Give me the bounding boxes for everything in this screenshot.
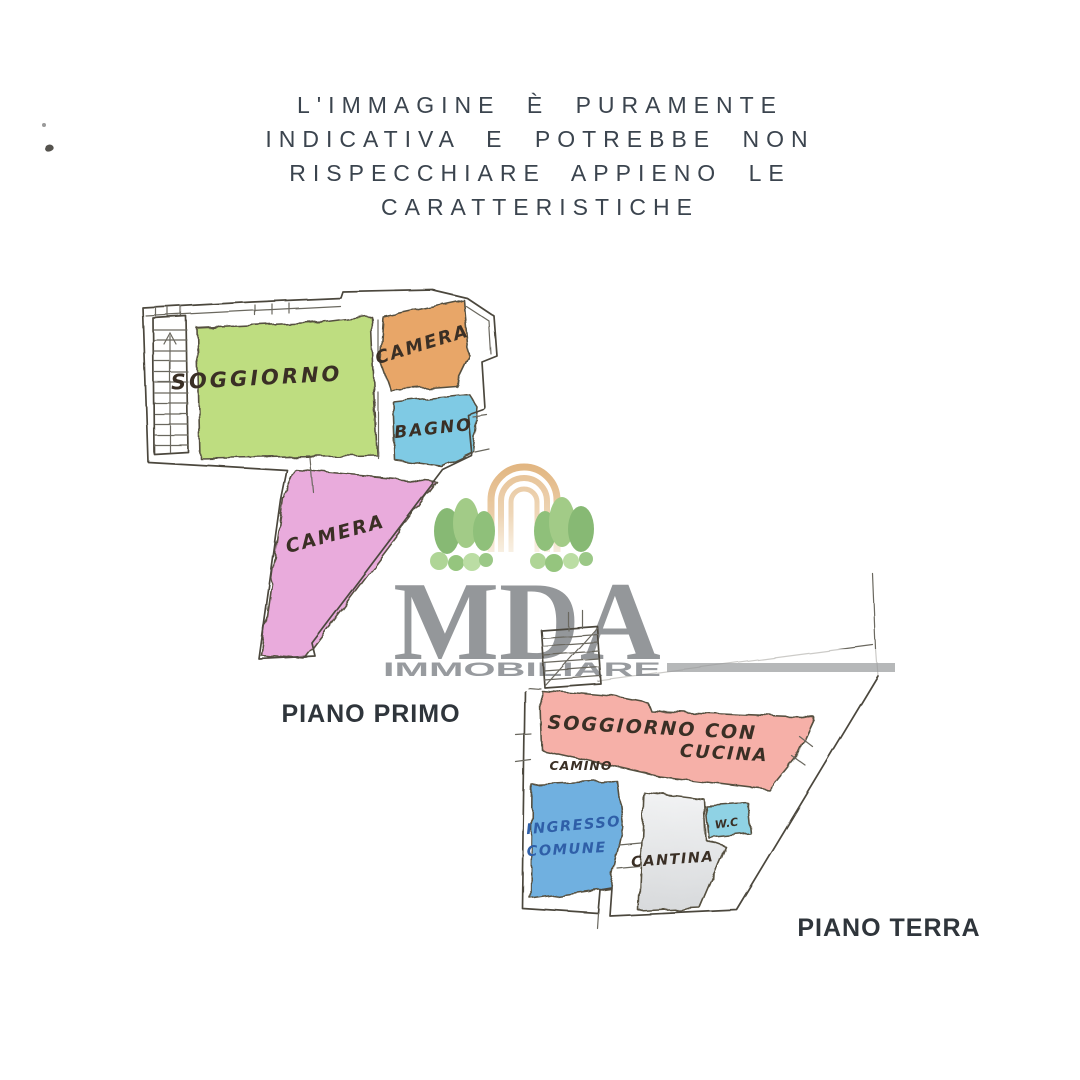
first-floor-title: PIANO PRIMO [281,700,460,728]
logo-rule [667,663,895,672]
room-ingresso-comune [531,781,623,899]
watermark-logo: MDA IMMOBILIARE [383,467,895,684]
ground-floor-title: PIANO TERRA [797,914,980,942]
scan-smudge [45,145,54,152]
scan-smudge [42,123,46,127]
floorplans-drawing: MDA IMMOBILIARE [0,0,1080,1080]
label-camino: CAMINO [549,758,612,773]
brand-subtitle-text: IMMOBILIARE [383,660,661,681]
floorplan-sheet: L'IMMAGINE È PURAMENTE INDICATIVA E POTR… [0,0,1080,1080]
